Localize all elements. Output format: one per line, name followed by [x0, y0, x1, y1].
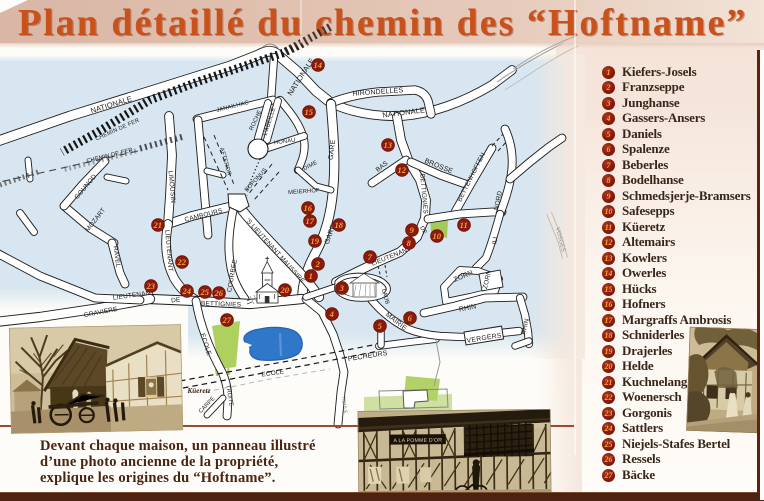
svg-text:20: 20: [279, 285, 289, 295]
svg-text:23: 23: [145, 281, 155, 291]
svg-text:BETTENHOFFEN: BETTENHOFFEN: [456, 151, 487, 203]
svg-text:7: 7: [368, 252, 373, 262]
svg-text:26: 26: [213, 288, 223, 298]
svg-text:12: 12: [397, 165, 406, 175]
svg-text:PECHEURS: PECHEURS: [347, 350, 388, 363]
svg-text:VOSGES: VOSGES: [554, 227, 566, 253]
svg-text:9: 9: [410, 225, 415, 235]
svg-text:BOPONUS: BOPONUS: [244, 167, 268, 193]
svg-text:27: 27: [221, 315, 231, 325]
svg-text:22: 22: [176, 257, 186, 267]
svg-text:18: 18: [334, 220, 343, 230]
svg-text:15: 15: [304, 107, 313, 117]
svg-text:2: 2: [315, 259, 321, 269]
svg-text:17: 17: [305, 216, 314, 226]
svg-text:Küeretz: Küeretz: [186, 387, 210, 395]
svg-text:19: 19: [310, 236, 319, 246]
svg-text:16: 16: [303, 203, 312, 213]
svg-text:24: 24: [181, 286, 191, 296]
svg-text:11: 11: [460, 220, 468, 230]
svg-text:MEIERHOF: MEIERHOF: [288, 188, 320, 196]
svg-text:1: 1: [309, 271, 313, 281]
svg-text:RAVEL: RAVEL: [112, 246, 122, 269]
svg-text:3: 3: [339, 283, 345, 293]
svg-text:25: 25: [199, 287, 209, 297]
svg-text:4: 4: [329, 309, 334, 319]
svg-text:10: 10: [432, 231, 441, 241]
svg-text:DE: DE: [171, 296, 182, 304]
svg-text:ILL: ILL: [491, 234, 500, 245]
svg-text:6: 6: [408, 313, 413, 323]
svg-text:5: 5: [378, 321, 383, 331]
svg-text:21: 21: [152, 220, 162, 230]
svg-text:BETTIGNIES: BETTIGNIES: [201, 300, 242, 308]
svg-text:13: 13: [383, 140, 392, 150]
svg-text:8: 8: [407, 238, 412, 248]
svg-text:A LA POMME D'OR: A LA POMME D'OR: [393, 438, 442, 445]
